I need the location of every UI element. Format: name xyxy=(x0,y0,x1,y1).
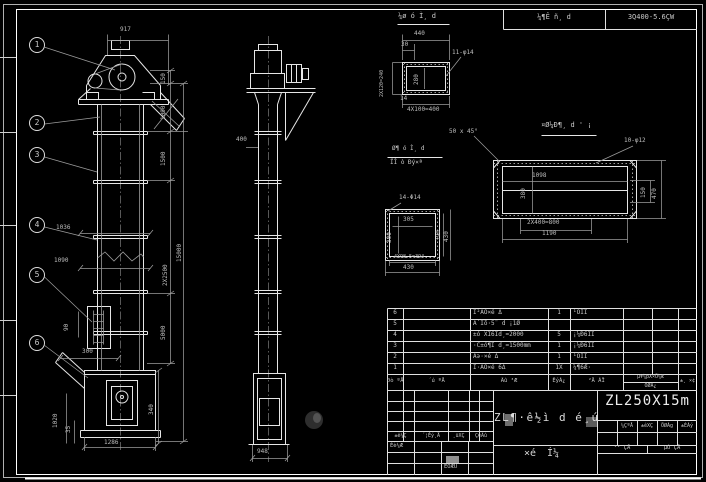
bom-header-weight-bottom: ÖØÁ¿ xyxy=(623,384,678,389)
bom-row-material: ¹ÓÍÎ xyxy=(573,354,587,360)
drawing-title: ZL¶·ê½ì d é¸ú xyxy=(494,412,597,423)
sheet-no: µÚ ÇÅ xyxy=(647,446,697,452)
rev-header-change: ¸üXÇ xyxy=(448,434,469,439)
bom-row-name: Î²ÂÖ×é Δ xyxy=(473,310,502,316)
bom-header-qty: ÊýÁ¿ xyxy=(548,379,570,385)
model-number: ZL250X15m xyxy=(598,394,697,408)
info-cell-weight: ÖØÁg xyxy=(657,424,677,429)
bom-header-name: Ãû ³Æ xyxy=(470,379,548,385)
balloon-3: 3 xyxy=(30,151,44,159)
info-cell-scale: ±ÈÀý xyxy=(677,424,697,429)
dim-300: 300 xyxy=(82,349,93,355)
dim-2x120: 2X120=240 xyxy=(380,70,385,97)
smudge-artifact xyxy=(313,413,321,423)
dim-30: 30 xyxy=(401,42,408,48)
drawing-linework xyxy=(0,0,706,482)
dim-280: 280 xyxy=(414,74,420,85)
dim-300-sq: 300 xyxy=(387,232,393,243)
cad-canvas: ¼¶Ê ñ¸ d 3Q400-5.6ÇW 1 2 3 4 5 6 917 150… xyxy=(0,0,706,482)
dim-4x100: 4X100=400 xyxy=(407,107,440,113)
bom-header-weight-top: µ¥¼þX×Ü¼Æ xyxy=(623,375,678,380)
front-view-outline xyxy=(56,41,185,438)
dimension-lines xyxy=(58,35,666,463)
dim-470: 470 xyxy=(652,188,658,199)
detail-c-title-2: ÏÎ ò Ðý×ª xyxy=(390,160,423,166)
top-header-right-label: 3Q400-5.6ÇW xyxy=(605,14,697,21)
rev-header-count: ´¦Êý¸Ä xyxy=(414,434,448,439)
dim-150: 150 xyxy=(161,73,167,84)
bom-header-material: ²Ä ÁÏ xyxy=(570,379,623,385)
dim-1190: 1190 xyxy=(542,231,556,237)
bom-row-name: Í·ÂÖ×é 6Δ xyxy=(473,365,506,371)
dim-1090-right: 1090 xyxy=(161,106,167,120)
balloon-1: 1 xyxy=(30,41,44,49)
top-header-left-label: ¼¶Ê ñ¸ d xyxy=(503,14,605,21)
bom-row-name: Á϶·×é Δ xyxy=(473,354,498,360)
dim-1500: 1500 xyxy=(161,152,167,166)
dim-1020: 1020 xyxy=(53,414,59,428)
balloon-6: 6 xyxy=(30,339,44,347)
dim-390: 390 xyxy=(436,230,442,241)
bom-row-no: 2 xyxy=(387,354,403,360)
dim-440: 440 xyxy=(414,31,425,37)
dim-430-bottom: 430 xyxy=(403,265,414,271)
dim-35: 35 xyxy=(66,426,72,433)
dim-90: 90 xyxy=(64,324,70,331)
dim-15000: 15000 xyxy=(177,244,183,262)
sheet-type-right: Í¼ xyxy=(547,449,559,459)
dim-1090-left: 1090 xyxy=(54,258,68,264)
balloon-2: 2 xyxy=(30,119,44,127)
front-view-details xyxy=(94,64,181,371)
balloon-5: 5 xyxy=(30,271,44,279)
dim-400: 400 xyxy=(236,137,247,143)
balloon-leaders xyxy=(44,47,115,378)
balloon-circles xyxy=(30,38,45,351)
detail-outlines xyxy=(386,25,637,261)
dim-2x400: 2X400=800 xyxy=(527,220,560,226)
holes-11-phi14: 11-φ14 xyxy=(452,50,474,56)
holes-10-phi12: 10-φ12 xyxy=(624,138,646,144)
dim-5000: 5000 xyxy=(161,326,167,340)
detail-a-title: ¼ø ó Ì¸ d xyxy=(398,13,436,20)
sheet-total: ¹² ÇÅ xyxy=(597,446,647,452)
dim-150-right: 150 xyxy=(641,187,647,198)
bom-row-no: 4 xyxy=(387,332,403,338)
bom-row-material: ¹ÓÍÎ xyxy=(573,310,587,316)
bom-row-name: ±ó XÌ6Îd¸=2000 xyxy=(473,332,524,338)
bom-row-qty: 1 xyxy=(548,354,570,360)
bom-header-code: ´ú ºÅ xyxy=(403,379,470,385)
info-cell-flag: ±êXÇ xyxy=(637,424,657,429)
bom-row-name: ·C±ó¶Ì d¸=1500mm xyxy=(473,343,531,349)
bom-row-material: ¡¼Ð6ÌÎ xyxy=(573,343,595,349)
bom-row-material: ¡¼Ð6ÌÎ xyxy=(573,332,595,338)
designer-label: Éè¼Æ xyxy=(390,444,403,450)
dim-14: 14 xyxy=(400,96,407,102)
dim-948: 948 xyxy=(257,449,268,455)
bom-row-qty: 1X xyxy=(548,365,570,371)
registration-ticks xyxy=(0,58,16,396)
bom-row-no: 6 xyxy=(387,310,403,316)
dim-917: 917 xyxy=(120,27,131,33)
rev-header-sign: Ç©Ãû xyxy=(469,434,493,439)
bom-row-name: Á´Ìõ·5¨ d ¡1Ø xyxy=(473,321,520,327)
bom-header-remark: ±¸ ×¢ xyxy=(678,379,697,384)
bom-row-qty: 5 xyxy=(548,332,570,338)
info-cell-mark: ¼ÇºÅ xyxy=(617,424,637,429)
bom-header-seq: Ðò ºÅ xyxy=(387,379,403,385)
dim-305: 305 xyxy=(403,217,414,223)
dim-2x2500: 2X2500 xyxy=(163,264,169,286)
selected-cell-highlight xyxy=(446,456,459,463)
side-view-outline xyxy=(247,45,316,445)
rev-header-mark: ±ê¼Ç xyxy=(387,434,414,439)
dim-1036: 1036 xyxy=(56,225,70,231)
date-label: ÈÕÆÚ xyxy=(444,465,457,471)
dim-380: 380 xyxy=(521,188,527,199)
dim-4x98: 4X98.5=394 xyxy=(394,255,424,260)
chamfer-note: 50 x 45° xyxy=(449,129,478,135)
bom-row-qty: 1 xyxy=(548,310,570,316)
bom-row-no: 1 xyxy=(387,365,403,371)
bom-row-material: ¼¶6Æ· xyxy=(573,365,591,371)
balloon-4: 4 xyxy=(30,221,44,229)
dim-1098: 1098 xyxy=(532,173,546,179)
bom-row-no: 5 xyxy=(387,321,403,327)
holes-14-phi14: 14-Φ14 xyxy=(399,195,421,201)
bom-row-no: 3 xyxy=(387,343,403,349)
dim-1286: 1286 xyxy=(104,440,118,446)
detail-c-title-1: Ø¶ ó Ì¸ d xyxy=(392,146,425,152)
bom-row-qty: 1 xyxy=(548,343,570,349)
dim-340: 340 xyxy=(149,404,155,415)
detail-b-title: ¤Ø¼Ð¶¸ d ' ¡ xyxy=(541,122,592,129)
sheet-type-left: ×é xyxy=(524,449,536,459)
dim-430-right: 430 xyxy=(444,231,450,242)
